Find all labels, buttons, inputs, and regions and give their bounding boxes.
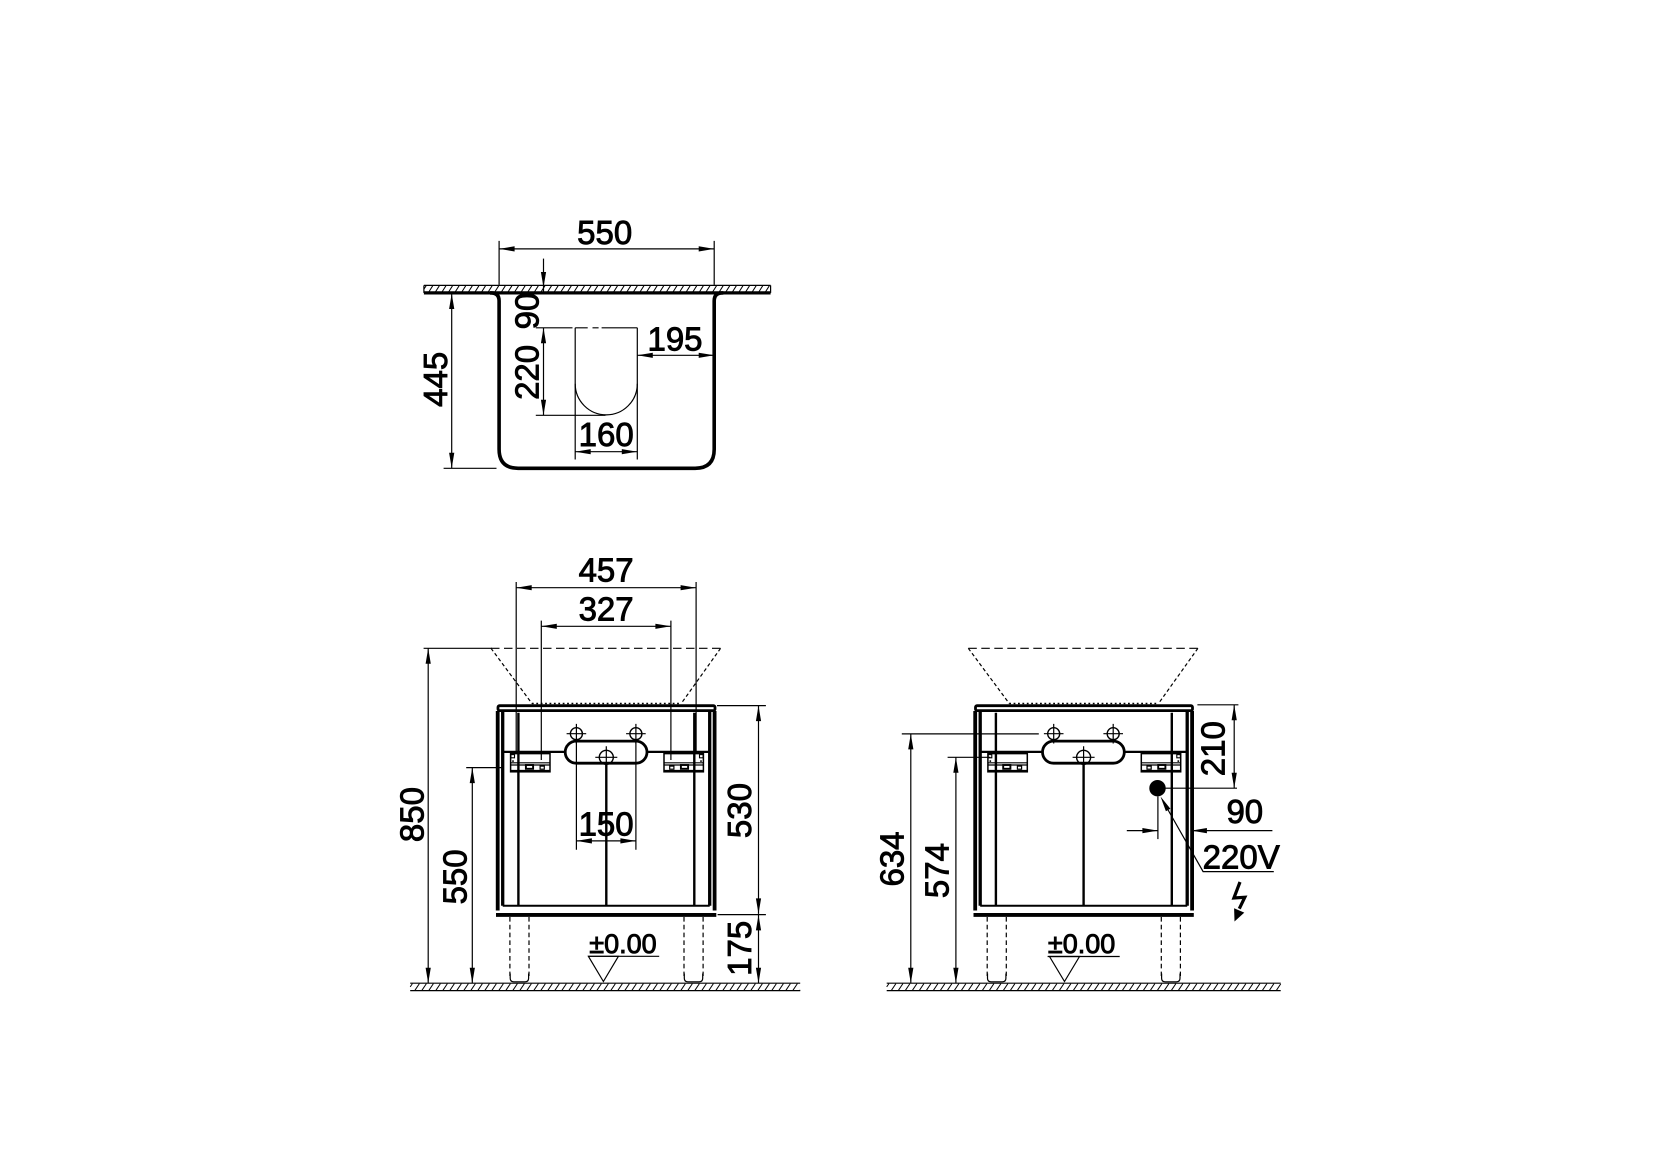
svg-text:550: 550	[577, 214, 632, 251]
svg-text:445: 445	[417, 352, 454, 407]
svg-text:327: 327	[579, 591, 634, 628]
svg-text:±0.00: ±0.00	[1048, 929, 1115, 959]
svg-text:634: 634	[874, 831, 911, 886]
svg-text:457: 457	[579, 552, 634, 589]
svg-text:210: 210	[1194, 721, 1231, 776]
svg-text:±0.00: ±0.00	[589, 929, 656, 959]
svg-text:530: 530	[721, 783, 758, 838]
svg-text:90: 90	[1226, 793, 1263, 830]
svg-text:150: 150	[579, 805, 634, 842]
svg-text:160: 160	[579, 416, 634, 453]
svg-text:175: 175	[721, 921, 758, 976]
svg-text:220: 220	[509, 345, 546, 400]
svg-text:90: 90	[509, 293, 546, 330]
svg-text:574: 574	[919, 843, 956, 898]
svg-text:550: 550	[436, 849, 473, 904]
svg-text:220V: 220V	[1203, 839, 1280, 876]
svg-text:850: 850	[393, 787, 430, 842]
svg-text:195: 195	[647, 320, 702, 357]
